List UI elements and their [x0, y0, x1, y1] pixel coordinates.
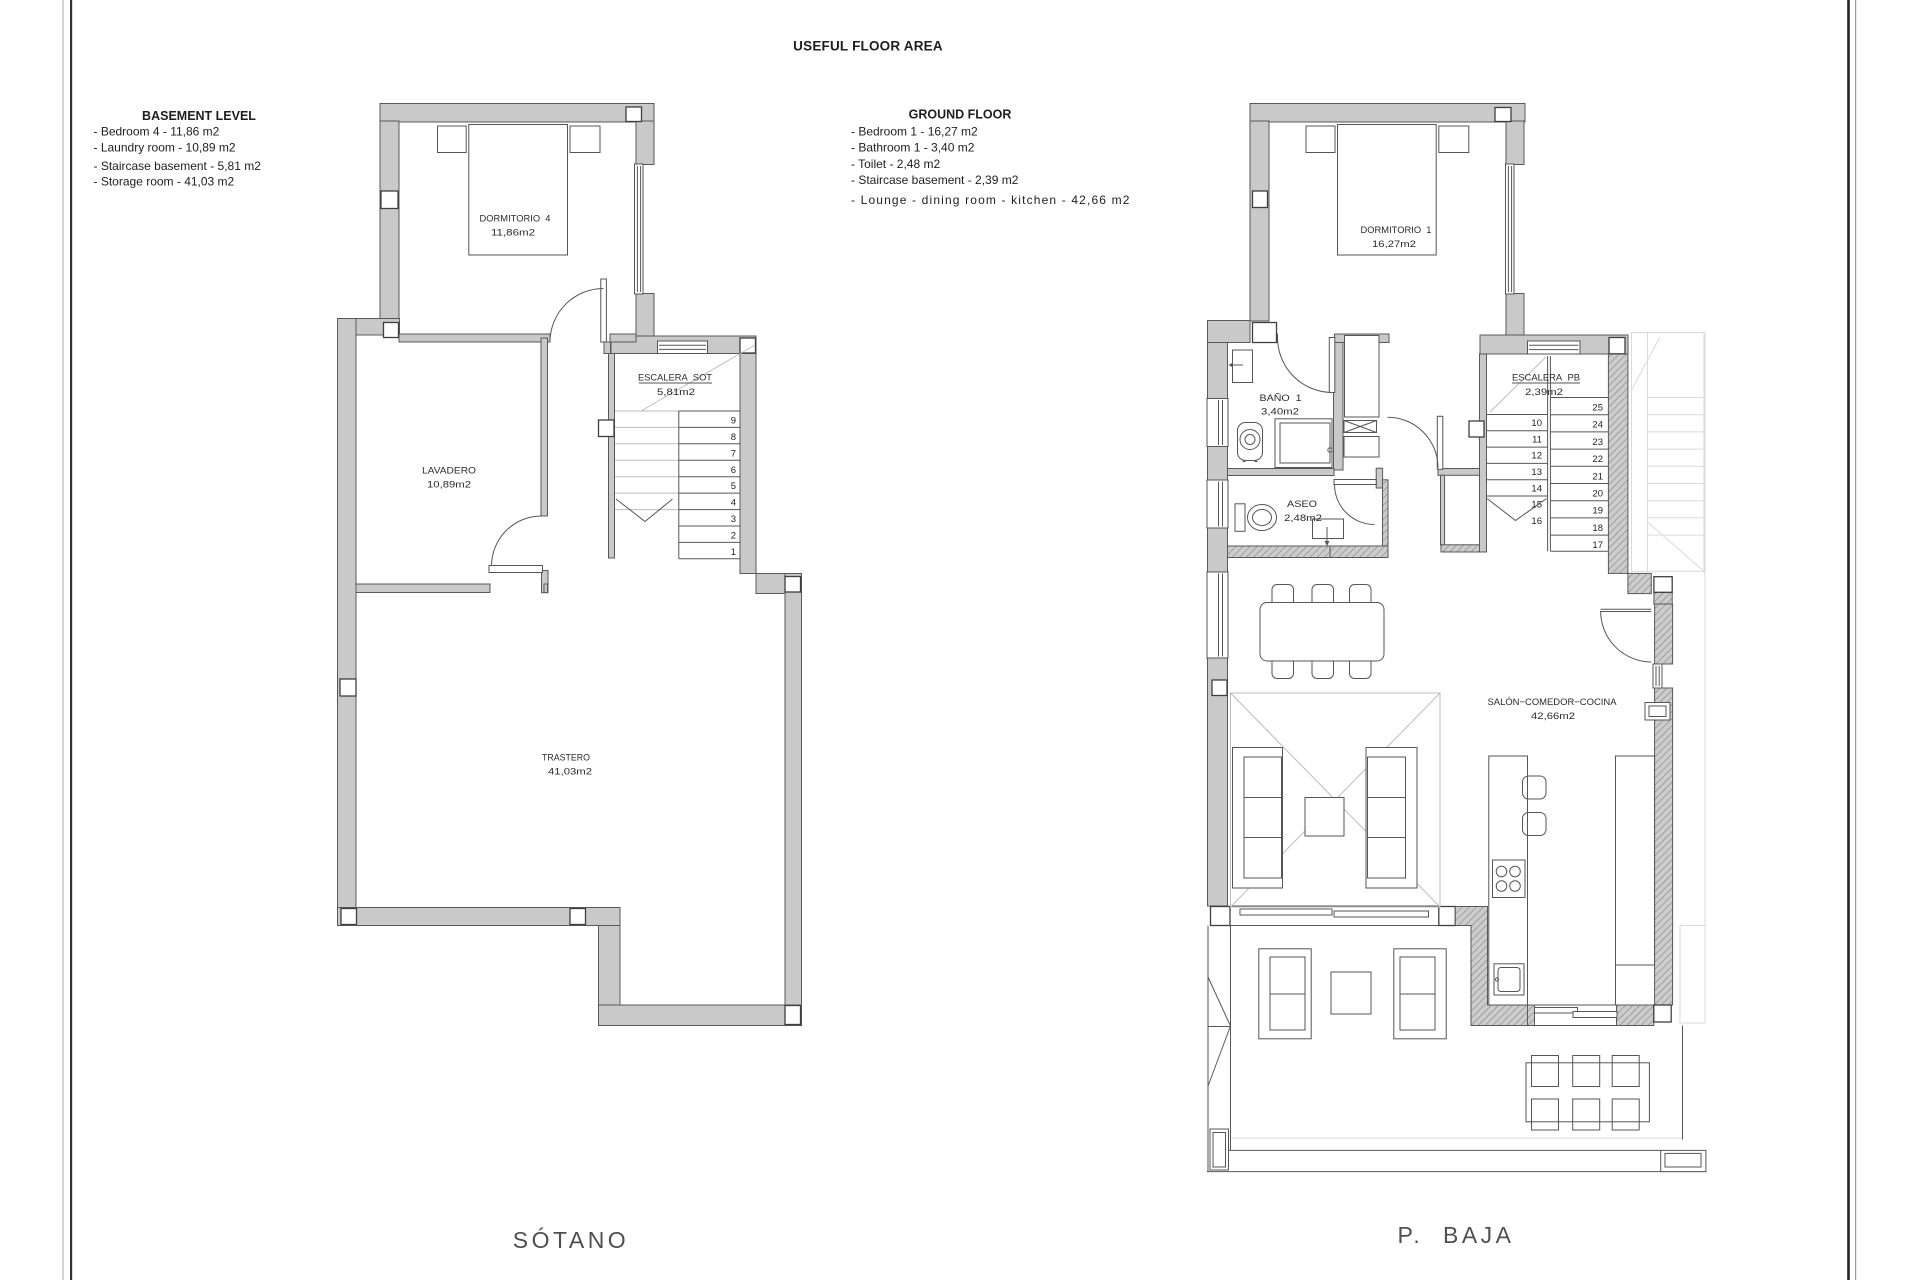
svg-text:LAVADERO: LAVADERO — [422, 466, 476, 477]
svg-text:41,03m2: 41,03m2 — [548, 767, 592, 778]
svg-text:17: 17 — [1592, 540, 1603, 551]
svg-text:- Lounge - dining room - kitch: - Lounge - dining room - kitchen - 42,66… — [851, 193, 1131, 207]
svg-text:13: 13 — [1531, 467, 1542, 478]
svg-text:ESCALERA PB: ESCALERA PB — [1512, 373, 1580, 384]
svg-text:16: 16 — [1531, 516, 1542, 527]
svg-text:11: 11 — [1532, 434, 1542, 445]
svg-text:- Bedroom 1 - 16,27 m2: - Bedroom 1 - 16,27 m2 — [851, 125, 978, 139]
svg-text:DORMITORIO 4: DORMITORIO 4 — [480, 214, 551, 225]
svg-text:- Storage room - 41,03 m2: - Storage room - 41,03 m2 — [94, 175, 235, 189]
svg-text:- Bedroom 4 - 11,86 m2: - Bedroom 4 - 11,86 m2 — [94, 125, 220, 139]
svg-text:21: 21 — [1592, 471, 1603, 482]
svg-text:- Staircase basement - 5,81 m2: - Staircase basement - 5,81 m2 — [94, 159, 262, 173]
svg-text:23: 23 — [1592, 437, 1603, 448]
svg-text:3,40m2: 3,40m2 — [1261, 407, 1299, 418]
svg-text:9: 9 — [731, 416, 736, 427]
svg-text:3: 3 — [731, 514, 736, 525]
svg-text:1: 1 — [731, 547, 736, 558]
svg-text:5: 5 — [731, 481, 736, 492]
svg-text:- Laundry room - 10,89 m2: - Laundry room - 10,89 m2 — [94, 141, 236, 155]
svg-text:11,86m2: 11,86m2 — [491, 228, 535, 239]
svg-text:6: 6 — [731, 465, 736, 476]
svg-text:18: 18 — [1592, 523, 1603, 534]
svg-text:- Toilet - 2,48 m2: - Toilet - 2,48 m2 — [851, 157, 940, 171]
svg-text:8: 8 — [731, 432, 736, 443]
svg-text:2,48m2: 2,48m2 — [1284, 513, 1322, 524]
svg-text:TRASTERO: TRASTERO — [542, 753, 590, 764]
svg-text:BASEMENT LEVEL: BASEMENT LEVEL — [142, 109, 256, 123]
svg-text:- Bathroom 1 - 3,40 m2: - Bathroom 1 - 3,40 m2 — [851, 141, 975, 155]
svg-text:20: 20 — [1592, 489, 1603, 500]
svg-text:42,66m2: 42,66m2 — [1531, 711, 1575, 722]
svg-text:BAÑO 1: BAÑO 1 — [1260, 393, 1302, 404]
svg-text:7: 7 — [731, 448, 736, 459]
svg-text:2,39m2: 2,39m2 — [1525, 387, 1563, 398]
svg-text:GROUND FLOOR: GROUND FLOOR — [909, 108, 1012, 122]
svg-text:25: 25 — [1592, 403, 1603, 414]
svg-text:2: 2 — [731, 531, 736, 542]
svg-text:5,81m2: 5,81m2 — [657, 387, 695, 398]
svg-text:P. BAJA: P. BAJA — [1397, 1222, 1514, 1248]
svg-text:ASEO: ASEO — [1287, 499, 1317, 510]
svg-text:10: 10 — [1531, 418, 1542, 429]
svg-text:24: 24 — [1592, 420, 1603, 431]
svg-text:- Staircase basement - 2,39 m2: - Staircase basement - 2,39 m2 — [851, 173, 1019, 187]
svg-text:DORMITORIO 1: DORMITORIO 1 — [1361, 225, 1432, 236]
svg-text:12: 12 — [1531, 451, 1542, 462]
svg-text:SALÓN−COMEDOR−COCINA: SALÓN−COMEDOR−COCINA — [1488, 697, 1618, 708]
svg-text:15: 15 — [1531, 500, 1542, 511]
svg-text:10,89m2: 10,89m2 — [427, 480, 471, 491]
svg-text:19: 19 — [1592, 506, 1603, 517]
svg-text:4: 4 — [731, 498, 736, 509]
svg-text:USEFUL FLOOR AREA: USEFUL FLOOR AREA — [793, 39, 943, 54]
svg-text:ESCALERA SOT: ESCALERA SOT — [638, 373, 712, 384]
svg-text:SÓTANO: SÓTANO — [513, 1227, 629, 1253]
svg-text:16,27m2: 16,27m2 — [1372, 239, 1416, 250]
svg-text:14: 14 — [1531, 483, 1542, 494]
svg-text:22: 22 — [1592, 454, 1603, 465]
